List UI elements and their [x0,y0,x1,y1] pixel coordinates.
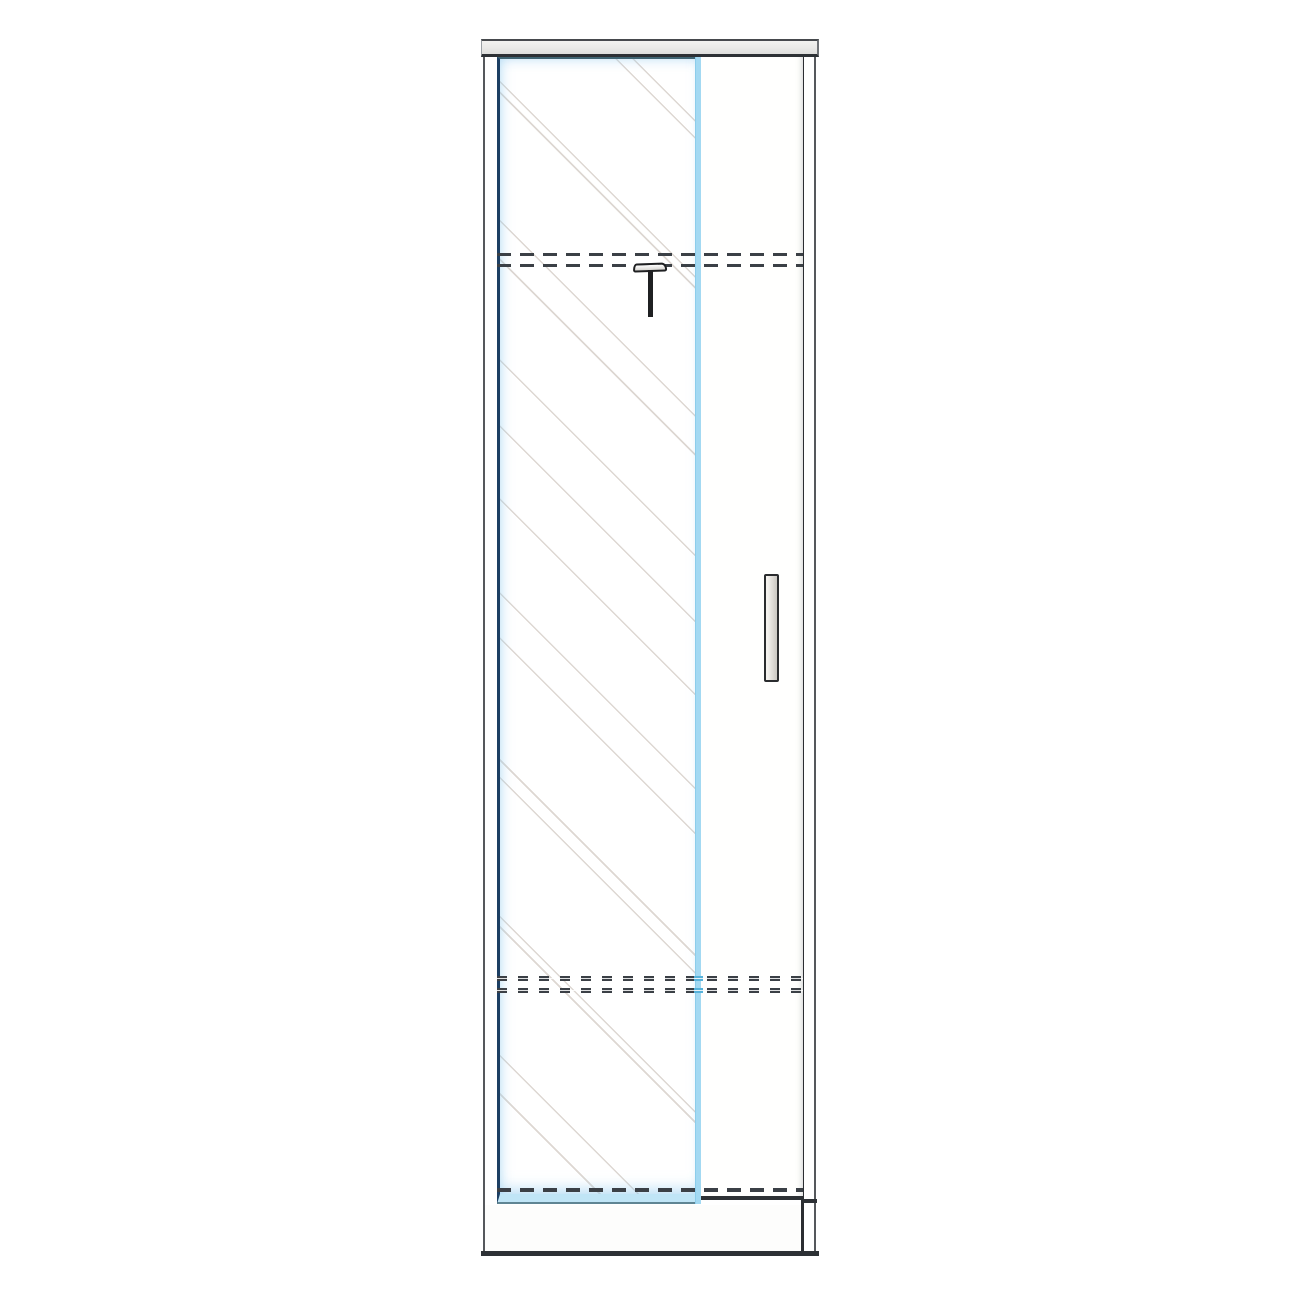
shelf-line-blue-tick [694,976,703,981]
right-side-panel-line [814,57,816,1255]
hidden-shelf-line-lower-2 [497,988,803,993]
hidden-base-line [497,1188,803,1192]
left-side-panel-line [483,57,485,1255]
bottom-panel-line [481,1251,819,1256]
door-handle [764,574,779,682]
plinth [485,1205,801,1251]
top-panel [481,39,819,57]
mirror-door [497,57,695,1204]
hidden-shelf-line-lower-1 [497,976,803,981]
shelf-line-blue-tick [694,988,703,993]
door-bottom-edge-extension [803,1199,817,1203]
wardrobe-diagram [481,39,819,1257]
hinged-door [701,57,803,1200]
hidden-shelf-line-top-1 [497,253,803,256]
page-canvas [0,0,1300,1300]
hanging-hook-stem [648,270,653,317]
